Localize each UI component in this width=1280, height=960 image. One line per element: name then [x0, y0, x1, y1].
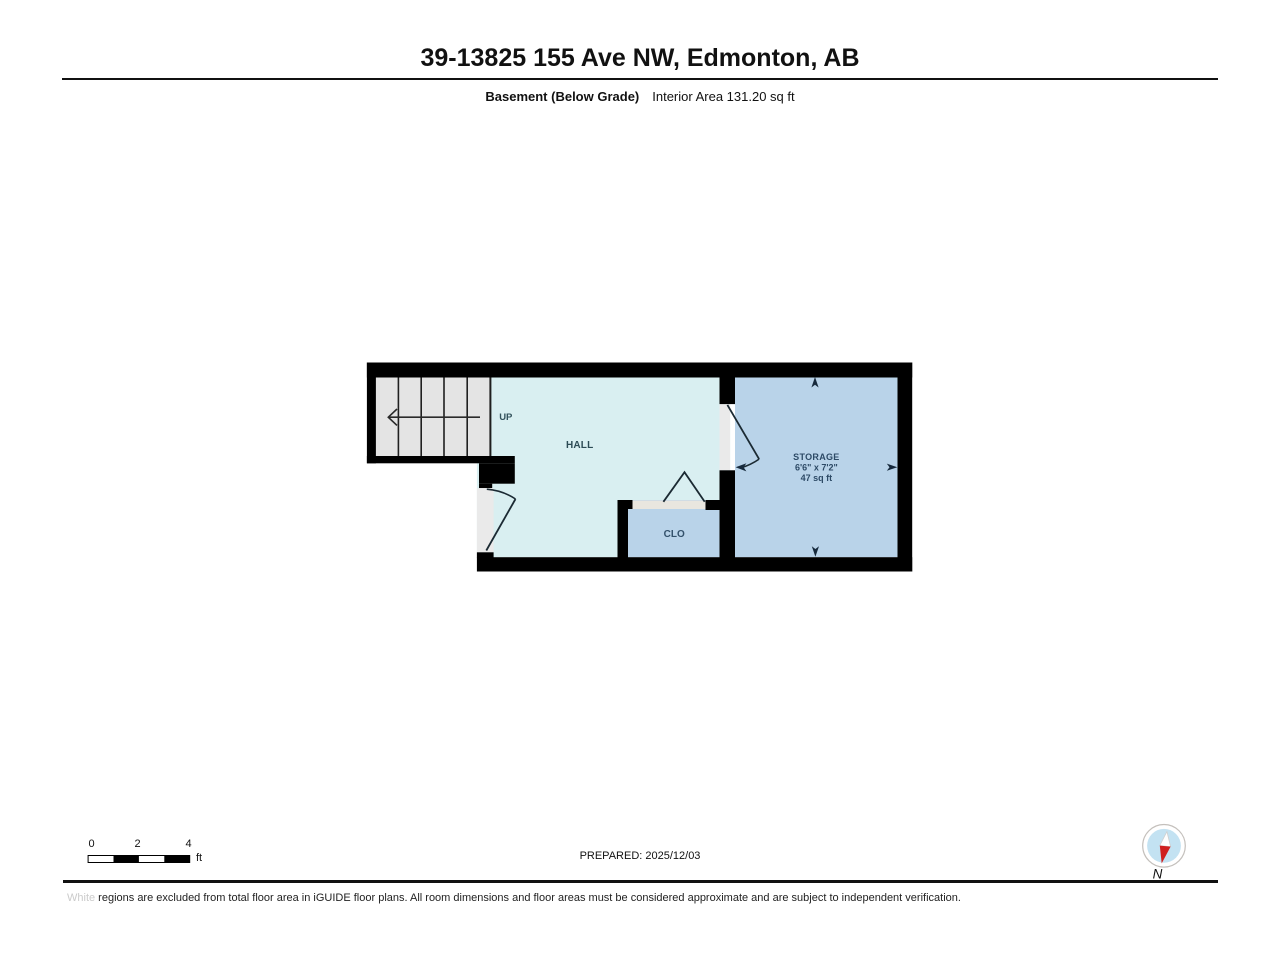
svg-text:47 sq ft: 47 sq ft [801, 473, 833, 483]
svg-text:CLO: CLO [664, 529, 685, 540]
svg-text:STORAGE: STORAGE [793, 452, 839, 462]
svg-text:HALL: HALL [566, 440, 593, 451]
svg-text:UP: UP [499, 412, 513, 423]
svg-text:6'6" x 7'2": 6'6" x 7'2" [795, 463, 838, 473]
